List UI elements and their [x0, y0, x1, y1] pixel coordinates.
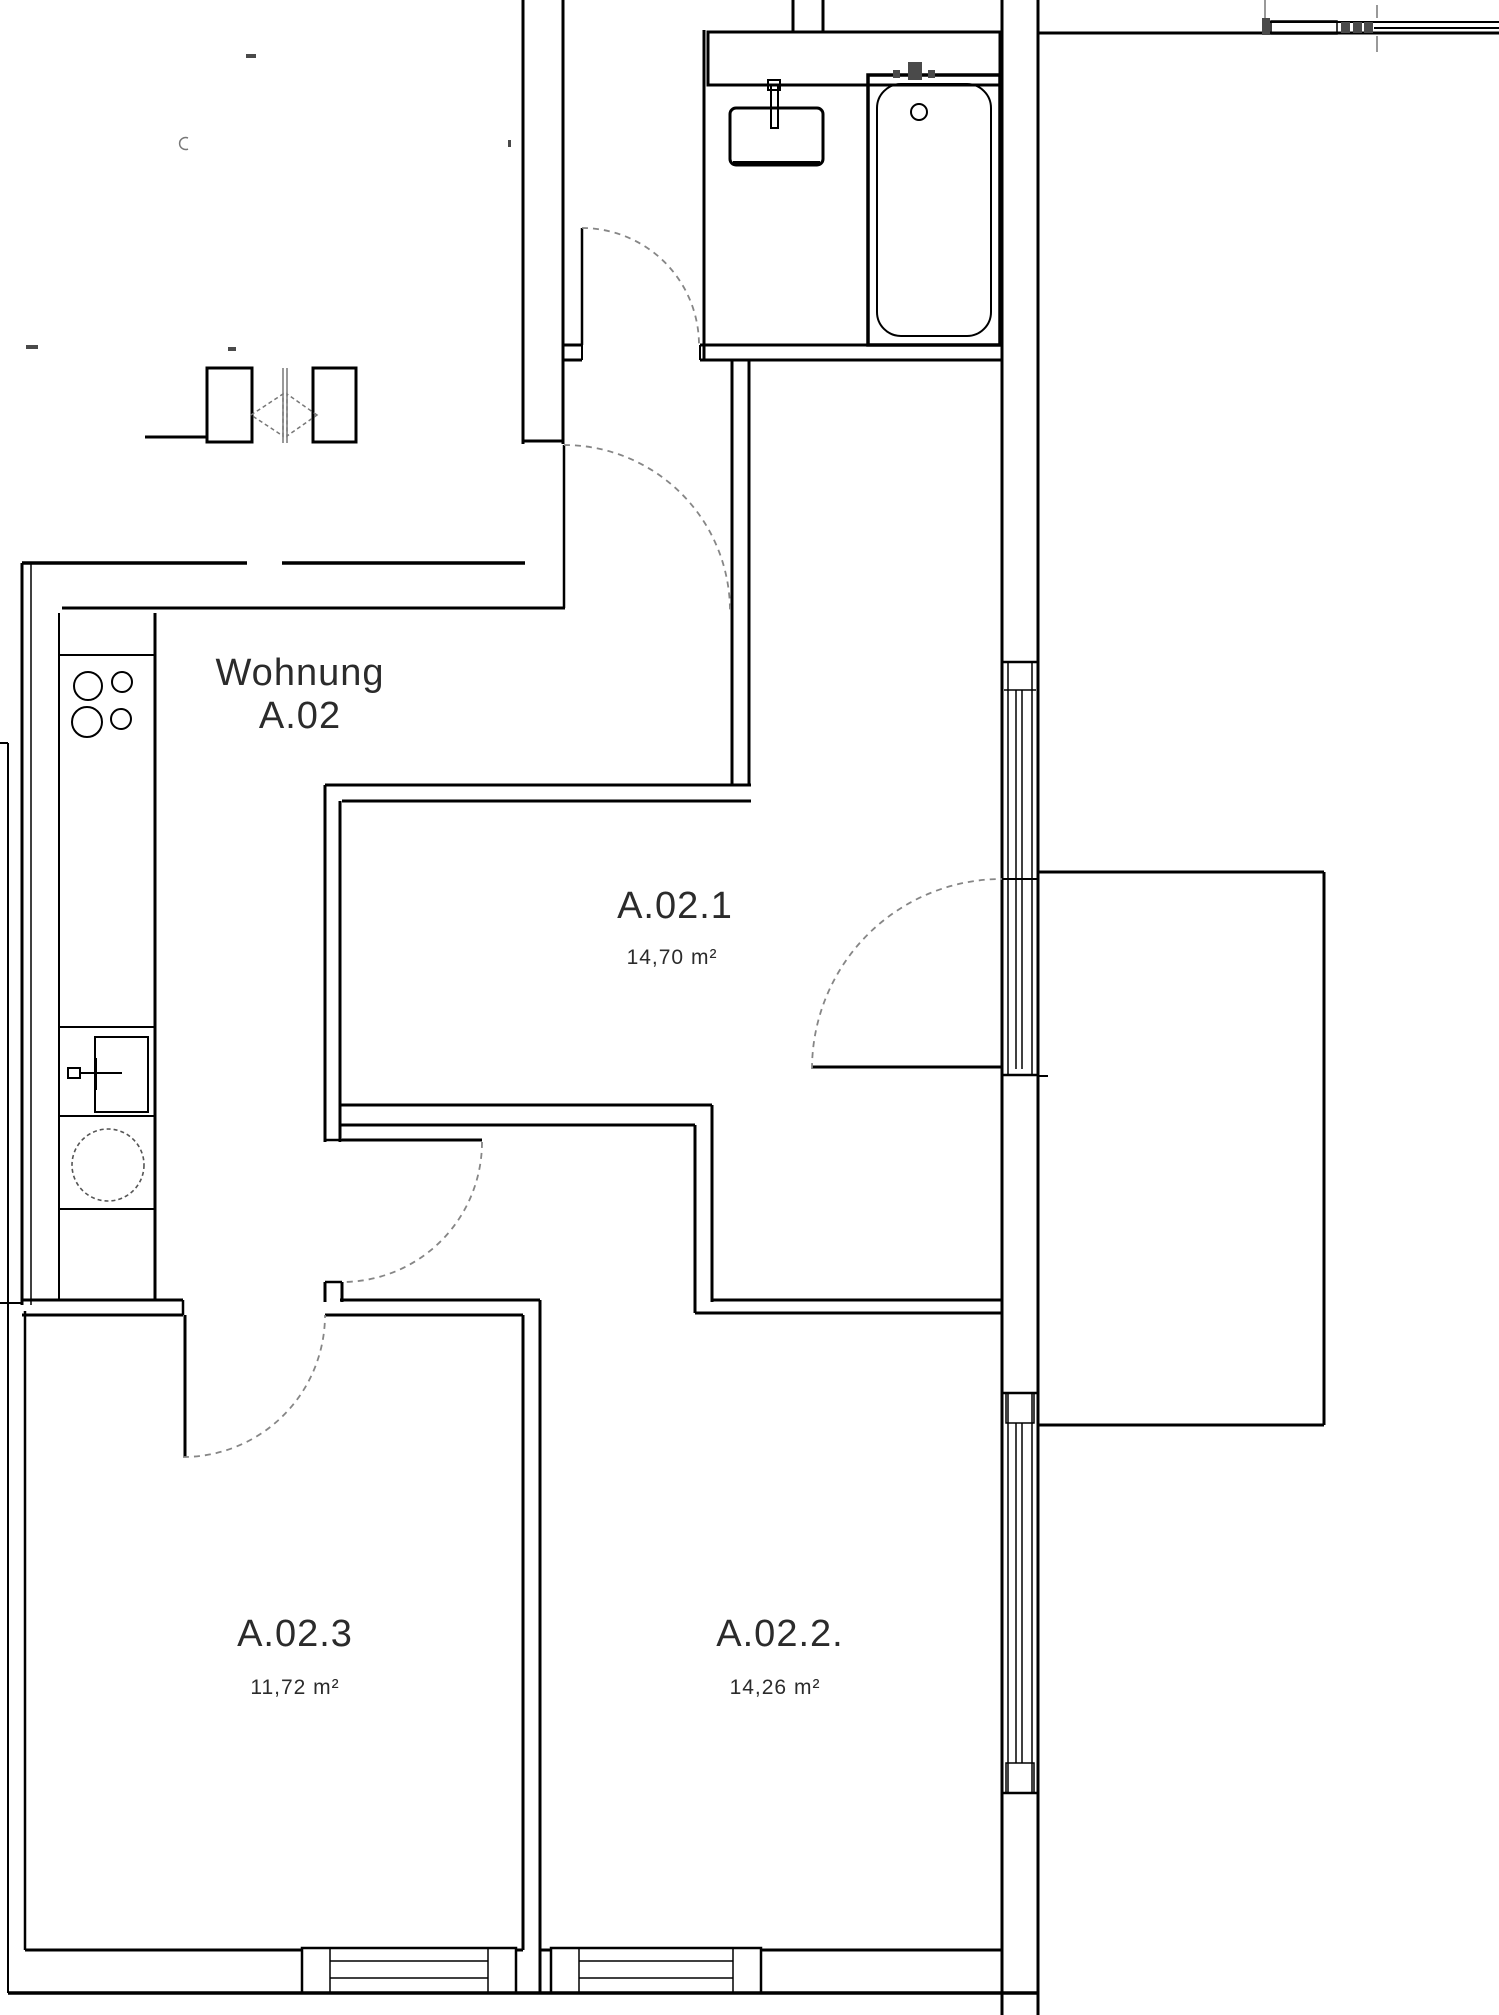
- bathroom-fixtures: [708, 32, 1000, 345]
- window-east-a021: [1002, 662, 1048, 1076]
- room-label-a022: A.02.2.: [660, 1614, 900, 1656]
- kitchen-appliance-icon: [72, 1129, 144, 1201]
- door-balcony-a021: [812, 879, 1002, 1069]
- door-swing-arc: [564, 445, 730, 611]
- vanity-counter: [708, 32, 1000, 85]
- window-south-a023: [302, 1948, 516, 1993]
- folding-door-icon: [145, 368, 356, 443]
- washbasin-icon: [730, 80, 823, 165]
- kitchen-sink-icon: [68, 1037, 148, 1112]
- door-a022: [342, 1140, 482, 1282]
- apartment-title-line1: Wohnung: [150, 652, 450, 695]
- door-swing-arc: [812, 879, 1002, 1069]
- stove-icon: [72, 672, 132, 737]
- door-a023: [183, 1315, 325, 1457]
- exterior-walls: [0, 0, 1499, 2015]
- door-bathroom: [582, 228, 699, 345]
- plan-marks: [26, 54, 511, 351]
- room-label-a021: A.02.1: [555, 886, 795, 928]
- window-south-a022: [551, 1948, 761, 1993]
- window-top-right: [1262, 0, 1499, 52]
- room-area-a023: 11,72 m²: [180, 1676, 410, 1699]
- kitchen-unit: [59, 613, 155, 1300]
- bathtub-icon: [868, 62, 1000, 345]
- room-label-a023: A.02.3: [175, 1614, 415, 1656]
- floor-plan: Wohnung A.02 A.02.1 14,70 m² A.02.2. 14,…: [0, 0, 1499, 2015]
- door-swing-arc: [582, 228, 699, 345]
- room-area-a022: 14,26 m²: [660, 1676, 890, 1699]
- window-east-a022: [1002, 1393, 1038, 1793]
- apartment-title-line2: A.02: [150, 695, 450, 738]
- door-swing-arc: [342, 1142, 482, 1282]
- floor-plan-drawing: [0, 0, 1499, 2015]
- balcony: [1038, 872, 1324, 1425]
- door-swing-arc: [183, 1315, 325, 1457]
- room-area-a021: 14,70 m²: [556, 946, 788, 969]
- door-entry: [564, 445, 730, 611]
